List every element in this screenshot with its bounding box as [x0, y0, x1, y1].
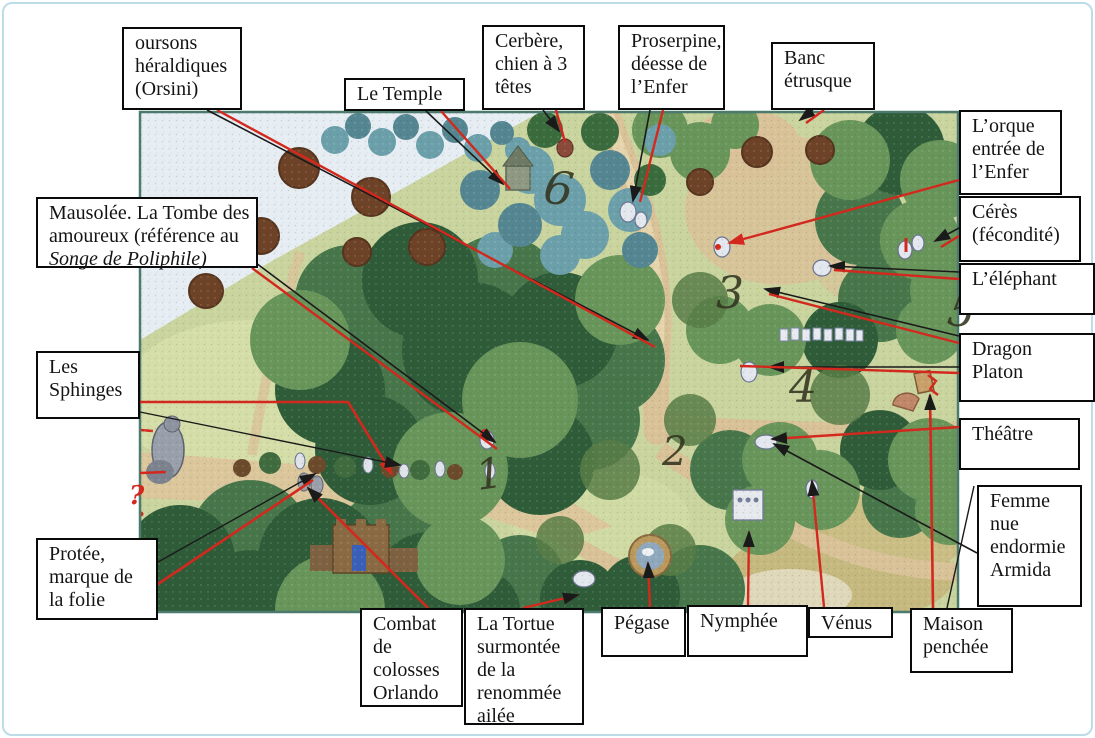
map-number-2: 2 [661, 429, 687, 475]
document-page: 123456? oursonshéraldiques(Orsini)Le Tem… [0, 0, 1095, 738]
map-number-3: 3 [716, 268, 744, 319]
arrow-nymphee [748, 532, 749, 605]
arrow-protee [140, 472, 166, 473]
garden-map-figure: 123456? [0, 0, 1095, 738]
red-question-mark: ? [129, 481, 145, 511]
map-number-4: 4 [788, 362, 817, 413]
